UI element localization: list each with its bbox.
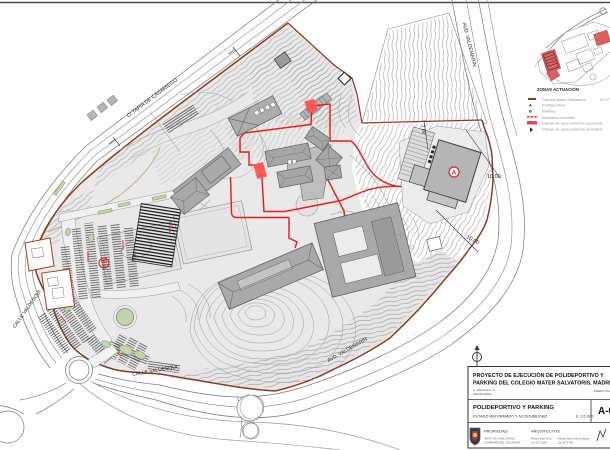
- svg-text:A: A: [452, 170, 457, 177]
- svg-text:Parcela Mater Salvatoris: Parcela Mater Salvatoris: [542, 97, 586, 102]
- svg-text:CALLE VALDESQUI: CALLE VALDESQUI: [12, 289, 43, 330]
- svg-text:Plazas de aparcamiento accesib: Plazas de aparcamiento accesible: [542, 120, 603, 125]
- svg-text:Parking: Parking: [542, 109, 556, 114]
- svg-text:ZONAS ACTUACIÓN: ZONAS ACTUACIÓN: [537, 87, 579, 92]
- svg-text:PARKING DEL COLEGIO MATER SALV: PARKING DEL COLEGIO MATER SALVATORIS, MA…: [473, 381, 610, 387]
- svg-text:Col Nº 11307: Col Nº 11307: [531, 441, 548, 445]
- svg-text:A: A: [529, 103, 532, 108]
- svg-text:Plazas de aparcamiento accesib: Plazas de aparcamiento accesible: [542, 127, 603, 132]
- svg-text:A-0: A-0: [598, 406, 610, 417]
- svg-text:Polideportivo: Polideportivo: [542, 103, 566, 108]
- svg-text:COMPAÑÍA DEL SALVADOR: COMPAÑÍA DEL SALVADOR: [484, 440, 520, 445]
- svg-text:B: B: [529, 109, 532, 114]
- svg-text:Col Nº 6768: Col Nº 6768: [558, 441, 573, 445]
- svg-text:10.00: 10.00: [487, 174, 501, 180]
- svg-text:89.978,49: 89.978,49: [600, 97, 610, 102]
- svg-text:28023 Madrid: 28023 Madrid: [473, 392, 492, 396]
- svg-text:PROYECTO DE EJECUCIÓN DE POLID: PROYECTO DE EJECUCIÓN DE POLIDEPORTIVO Y: [473, 371, 604, 379]
- svg-text:ENERO 2021: ENERO 2021: [594, 389, 610, 393]
- svg-text:Itinerario accesible: Itinerario accesible: [542, 115, 576, 120]
- svg-text:ARQUITECTOS: ARQUITECTOS: [531, 429, 560, 434]
- svg-text:ESTADO REFORMADO Y ACCESIBILID: ESTADO REFORMADO Y ACCESIBILIDAD: [473, 415, 548, 419]
- svg-text:PROPIEDAD: PROPIEDAD: [484, 429, 508, 434]
- svg-text:POLIDEPORTIVO Y PARKING: POLIDEPORTIVO Y PARKING: [473, 405, 554, 411]
